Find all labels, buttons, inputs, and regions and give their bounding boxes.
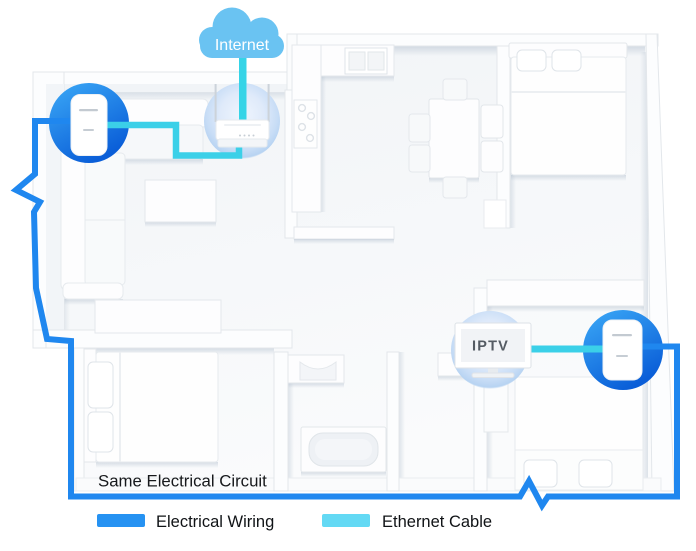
svg-text:IPTV: IPTV [472,339,509,355]
svg-text:Ethernet Cable: Ethernet Cable [382,513,492,531]
svg-text:Same Electrical Circuit: Same Electrical Circuit [98,472,267,491]
svg-text:Internet: Internet [215,37,270,54]
svg-text:Electrical Wiring: Electrical Wiring [156,513,274,531]
